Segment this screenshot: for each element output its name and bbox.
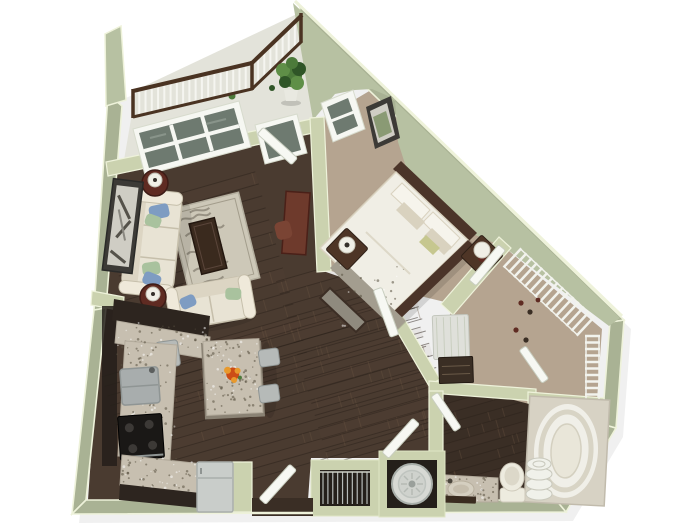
balcony-plant-small-2 xyxy=(269,85,275,91)
nightstand-east-lamp xyxy=(474,242,490,258)
loveseat-pillow-green xyxy=(225,288,241,301)
wall-entry-stub xyxy=(233,462,252,512)
closet-chest xyxy=(439,356,474,383)
stove xyxy=(118,414,165,461)
vanity-faucet xyxy=(448,479,453,484)
side-table-north xyxy=(142,170,168,196)
tall-wall-left-slab xyxy=(105,26,126,106)
floorplan-render xyxy=(0,0,700,525)
kitchen-sink xyxy=(120,367,160,406)
dining-chair-2 xyxy=(258,384,280,404)
closet-hamper xyxy=(432,314,470,359)
laundry-closet xyxy=(379,451,445,517)
dining-chair-1 xyxy=(258,348,280,368)
refrigerator xyxy=(197,462,233,512)
plant-pot xyxy=(284,90,298,101)
kitchen-left-cabinet-shade xyxy=(102,306,117,466)
floorplan-page xyxy=(0,0,700,525)
toilet xyxy=(500,463,525,502)
washer xyxy=(392,464,432,504)
coat-closet xyxy=(311,460,379,516)
